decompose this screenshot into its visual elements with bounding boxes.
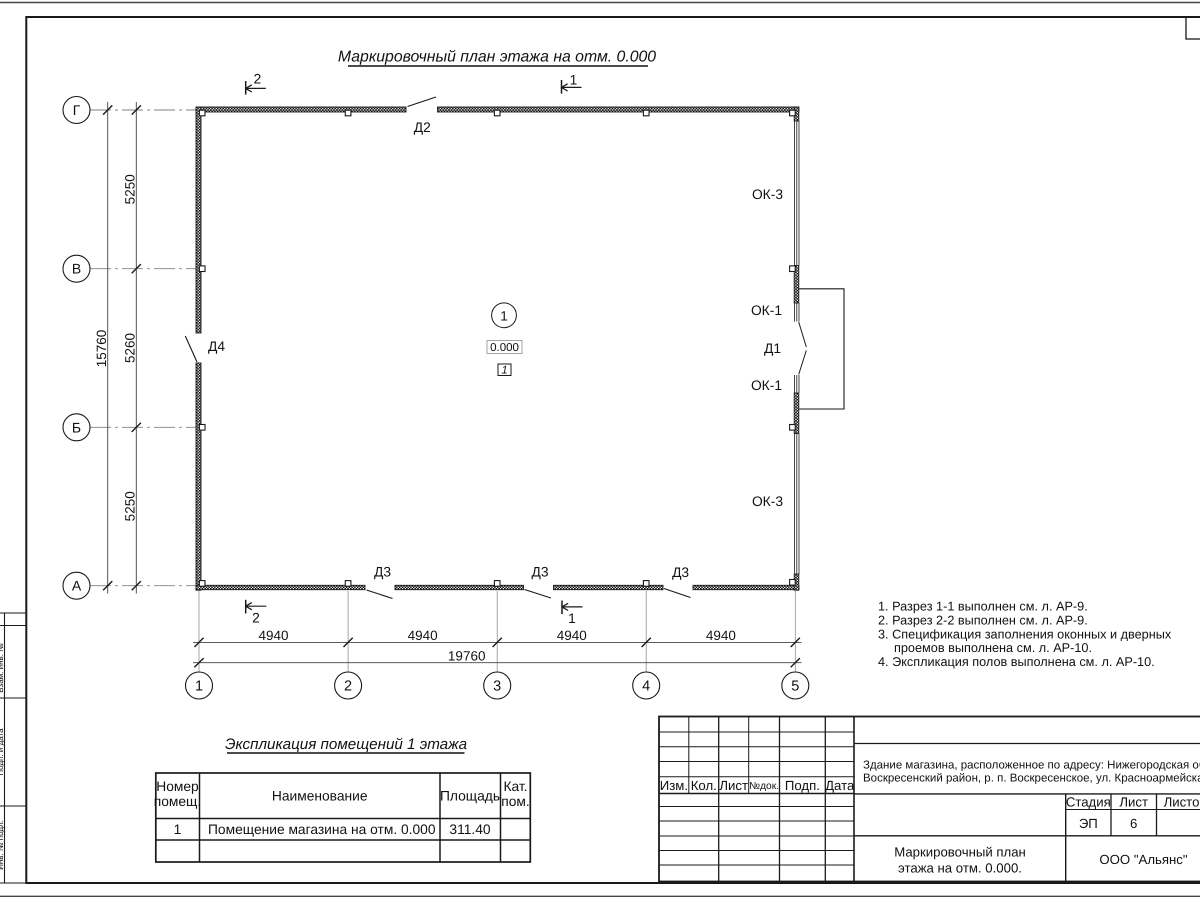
svg-text:5: 5 [791, 679, 799, 695]
svg-text:15760: 15760 [94, 330, 109, 368]
svg-text:1: 1 [570, 73, 578, 88]
svg-text:пом.: пом. [501, 794, 529, 809]
svg-text:Листов: Листов [1164, 795, 1200, 810]
svg-text:Кол.: Кол. [691, 778, 717, 793]
svg-text:Стадия: Стадия [1066, 795, 1111, 810]
svg-text:Кат.: Кат. [503, 779, 527, 794]
svg-text:этажа на отм. 0.000.: этажа на отм. 0.000. [898, 861, 1022, 876]
svg-text:Д2: Д2 [414, 120, 431, 135]
svg-text:4940: 4940 [557, 628, 587, 643]
svg-text:ОК-1: ОК-1 [751, 303, 782, 318]
svg-text:1: 1 [500, 308, 508, 323]
svg-text:3: 3 [493, 679, 501, 695]
svg-text:2: 2 [344, 679, 352, 695]
svg-text:А: А [72, 578, 82, 594]
svg-text:1: 1 [195, 679, 203, 695]
svg-text:Д4: Д4 [208, 339, 225, 354]
svg-text:Воскресенский район, р. п. Вос: Воскресенский район, р. п. Воскресенское… [863, 773, 1200, 785]
svg-text:311.40: 311.40 [449, 822, 491, 837]
svg-text:Д3: Д3 [374, 565, 391, 580]
svg-text:2: 2 [252, 611, 260, 626]
svg-text:1: 1 [501, 365, 507, 377]
svg-text:Маркировочный план: Маркировочный план [894, 845, 1026, 860]
svg-text:Экспликация помещений 1 этажа: Экспликация помещений 1 этажа [225, 736, 467, 753]
svg-text:3. Спецификация заполнения око: 3. Спецификация заполнения оконных и две… [878, 627, 1172, 641]
svg-text:Маркировочный план этажа на от: Маркировочный план этажа на отм. 0.000 [338, 49, 656, 66]
svg-text:4: 4 [642, 679, 650, 695]
svg-text:Площадь: Площадь [440, 789, 500, 804]
svg-text:Д3: Д3 [672, 565, 689, 580]
svg-text:Изм.: Изм. [660, 778, 688, 793]
svg-text:Лист: Лист [1119, 795, 1148, 810]
svg-text:ОК-3: ОК-3 [752, 187, 783, 202]
svg-text:5260: 5260 [123, 333, 138, 363]
svg-text:2. Разрез 2-2 выполнен см. л.: 2. Разрез 2-2 выполнен см. л. АР-9. [878, 613, 1088, 627]
svg-text:Подп.: Подп. [785, 778, 820, 793]
svg-text:4. Экспликация полов выполнена: 4. Экспликация полов выполнена см. л. АР… [878, 655, 1155, 669]
svg-text:№док.: №док. [749, 781, 779, 792]
svg-text:Здание магазина, расположенное: Здание магазина, расположенное по адресу… [863, 760, 1200, 772]
svg-text:Наименование: Наименование [272, 789, 368, 804]
svg-text:5250: 5250 [123, 174, 138, 204]
svg-text:Помещение магазина на отм. 0.0: Помещение магазина на отм. 0.000 [208, 822, 436, 837]
svg-text:Номер: Номер [156, 779, 199, 794]
svg-text:ОК-3: ОК-3 [752, 494, 783, 509]
svg-text:В: В [72, 261, 81, 277]
svg-text:19760: 19760 [448, 648, 486, 663]
svg-text:0.000: 0.000 [490, 342, 519, 354]
svg-text:4940: 4940 [408, 628, 438, 643]
svg-text:ООО "Альянс": ООО "Альянс" [1099, 852, 1187, 867]
svg-text:1: 1 [568, 611, 576, 626]
svg-text:Дата: Дата [825, 778, 855, 793]
svg-text:Взам. инв. №: Взам. инв. № [0, 643, 5, 693]
svg-text:5250: 5250 [123, 491, 138, 521]
svg-text:ЭП: ЭП [1079, 816, 1098, 831]
svg-text:помещ.: помещ. [154, 794, 202, 809]
svg-text:Подп. и дата: Подп. и дата [0, 728, 5, 776]
svg-text:Лист: Лист [719, 778, 748, 793]
svg-text:Г: Г [73, 102, 81, 118]
svg-text:Б: Б [72, 419, 81, 435]
svg-text:Инв. № подл.: Инв. № подл. [0, 820, 5, 870]
svg-text:4940: 4940 [258, 628, 288, 643]
svg-text:Д3: Д3 [531, 565, 548, 580]
svg-text:ОК-1: ОК-1 [751, 378, 782, 393]
svg-text:4940: 4940 [706, 628, 736, 643]
svg-text:Д1: Д1 [764, 341, 781, 356]
svg-text:1. Разрез 1-1 выполнен см. л.: 1. Разрез 1-1 выполнен см. л. АР-9. [878, 600, 1088, 614]
svg-text:6: 6 [1130, 816, 1137, 831]
svg-text:1: 1 [174, 822, 182, 837]
svg-text:2: 2 [254, 72, 262, 87]
svg-text:проемов выполнена см. л. АР-10: проемов выполнена см. л. АР-10. [894, 641, 1092, 655]
